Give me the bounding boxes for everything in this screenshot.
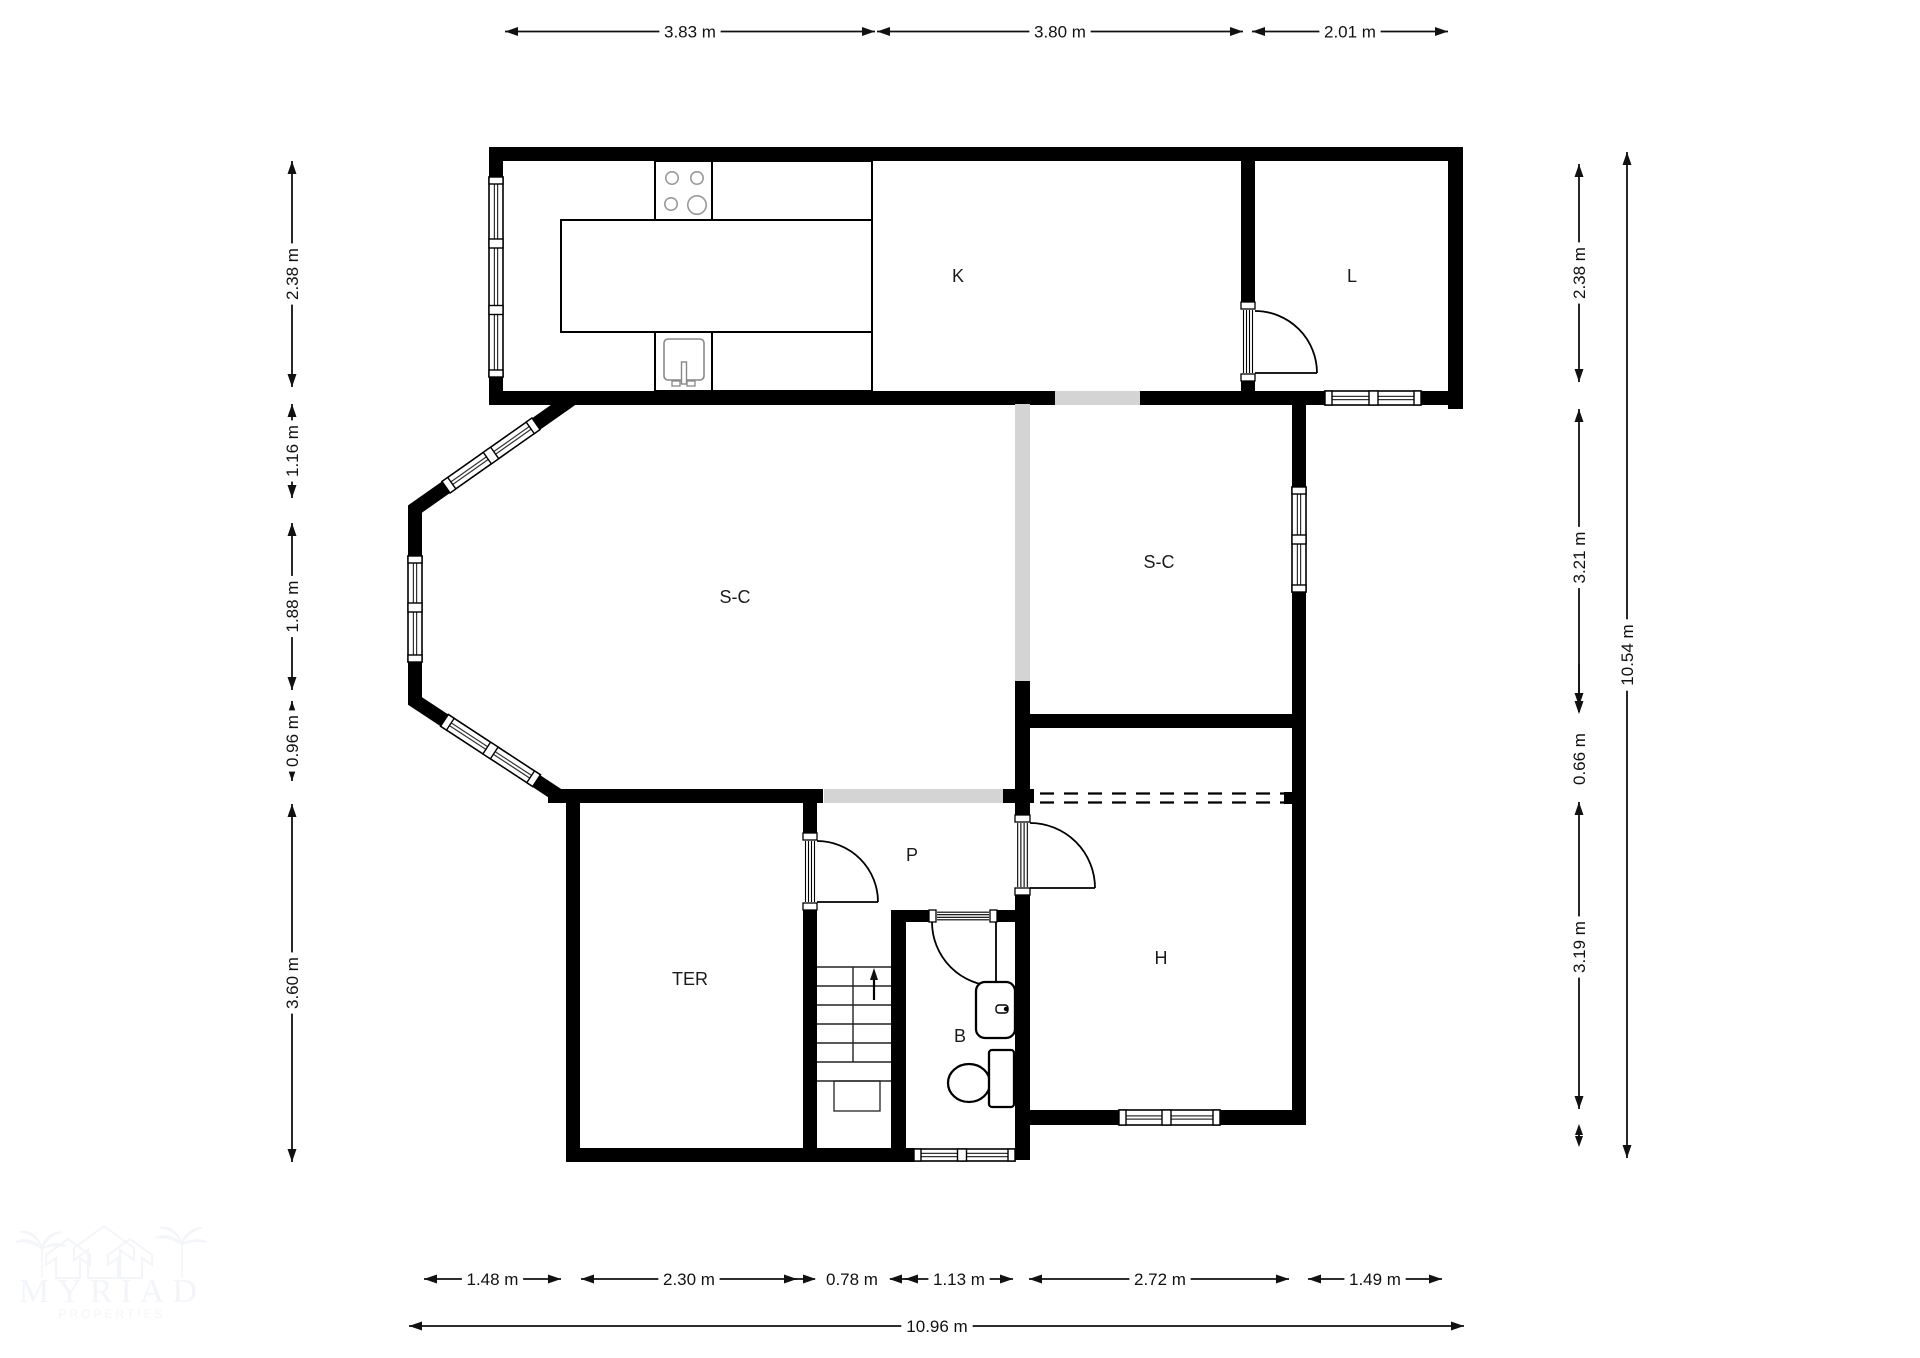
- svg-text:2.30 m: 2.30 m: [663, 1270, 715, 1289]
- svg-text:3.60 m: 3.60 m: [283, 957, 302, 1009]
- svg-text:10.96 m: 10.96 m: [906, 1317, 967, 1336]
- svg-text:S-C: S-C: [720, 587, 751, 607]
- svg-text:0.78 m: 0.78 m: [826, 1270, 878, 1289]
- svg-text:1.16 m: 1.16 m: [283, 425, 302, 477]
- svg-text:3.21 m: 3.21 m: [1570, 532, 1589, 584]
- svg-text:3.83 m: 3.83 m: [664, 23, 716, 42]
- svg-text:S-C: S-C: [1144, 552, 1175, 572]
- svg-text:P: P: [906, 845, 918, 865]
- svg-text:K: K: [952, 266, 964, 286]
- svg-text:0.66 m: 0.66 m: [1570, 733, 1589, 785]
- svg-text:1.49 m: 1.49 m: [1349, 1270, 1401, 1289]
- svg-text:TER: TER: [672, 969, 708, 989]
- svg-text:2.38 m: 2.38 m: [283, 248, 302, 300]
- svg-text:2.72 m: 2.72 m: [1134, 1270, 1186, 1289]
- svg-text:3.19 m: 3.19 m: [1570, 921, 1589, 973]
- svg-text:PROPERTIES: PROPERTIES: [58, 1307, 165, 1321]
- svg-text:H: H: [1155, 948, 1168, 968]
- svg-text:MYRIAD: MYRIAD: [19, 1273, 205, 1310]
- svg-text:0.96 m: 0.96 m: [283, 715, 302, 767]
- svg-text:B: B: [954, 1026, 966, 1046]
- svg-text:10.54 m: 10.54 m: [1618, 624, 1637, 685]
- svg-text:2.01 m: 2.01 m: [1324, 23, 1376, 42]
- svg-text:L: L: [1347, 266, 1357, 286]
- svg-text:1.13 m: 1.13 m: [933, 1270, 985, 1289]
- svg-text:1.48 m: 1.48 m: [467, 1270, 519, 1289]
- svg-text:2.38 m: 2.38 m: [1570, 247, 1589, 299]
- svg-text:3.80 m: 3.80 m: [1034, 23, 1086, 42]
- svg-text:1.88 m: 1.88 m: [283, 581, 302, 633]
